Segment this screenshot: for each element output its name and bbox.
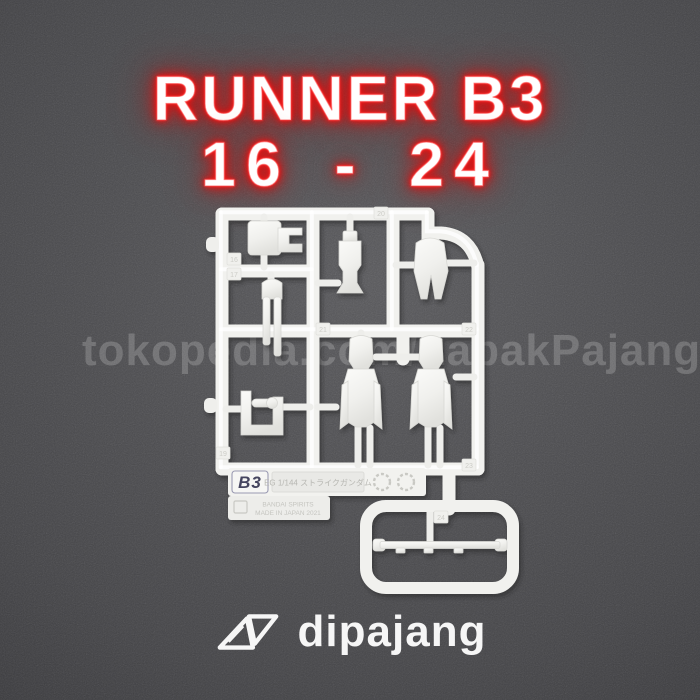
logo-text: dipajang [298, 610, 487, 654]
title-part-range: 16 - 24 [0, 132, 700, 198]
svg-text:17: 17 [230, 272, 238, 279]
part-number-tag: 16 [227, 253, 241, 265]
part-number-tag: 19 [216, 447, 230, 459]
blade-part [373, 539, 507, 553]
maker-tab: BANDAI SPIRITS MADE IN JAPAN 2021 [228, 496, 330, 520]
svg-text:19: 19 [219, 451, 227, 458]
runner-label-tab: B3 EG 1/144 ストライクガンダム [228, 468, 426, 496]
leg-armor-part-left [340, 336, 382, 430]
part-number-tag: 17 [227, 268, 241, 280]
svg-text:21: 21 [319, 327, 327, 334]
runner-sprue-image: B3 EG 1/144 ストライクガンダム BANDAI SPIRITS MAD… [168, 193, 528, 605]
logo-mark-icon [214, 610, 282, 654]
leg-armor-part-right [410, 336, 452, 430]
backpack-part [248, 221, 302, 255]
svg-text:20: 20 [377, 211, 385, 218]
maker-line-1: BANDAI SPIRITS [262, 502, 314, 509]
svg-text:24: 24 [437, 515, 445, 522]
shin-armor-part [414, 238, 448, 299]
part-number-tag: 24 [434, 511, 448, 523]
sprue-outer-nub [206, 237, 219, 252]
maker-line-2: MADE IN JAPAN 2021 [255, 510, 321, 517]
label-code: B3 [238, 473, 262, 492]
part-number-tag: 23 [462, 459, 476, 471]
dipajang-logo: dipajang [0, 600, 700, 664]
fork-part [262, 279, 282, 356]
part-number-tag: 20 [374, 207, 388, 219]
part-number-tag: 21 [316, 323, 330, 335]
title-runner-code: RUNNER B3 [0, 66, 700, 132]
label-kit-text: EG 1/144 ストライクガンダム [264, 478, 372, 488]
product-photo: { "background": { "base_color": "#4b4b4e… [0, 0, 700, 700]
svg-text:16: 16 [230, 257, 238, 264]
part-number-tag: 22 [462, 323, 476, 335]
page-title: RUNNER B3 16 - 24 [0, 66, 700, 198]
svg-text:22: 22 [465, 327, 473, 334]
u-bracket-part [241, 391, 283, 435]
sprue-outer-nub [204, 398, 217, 413]
svg-text:23: 23 [465, 463, 473, 470]
